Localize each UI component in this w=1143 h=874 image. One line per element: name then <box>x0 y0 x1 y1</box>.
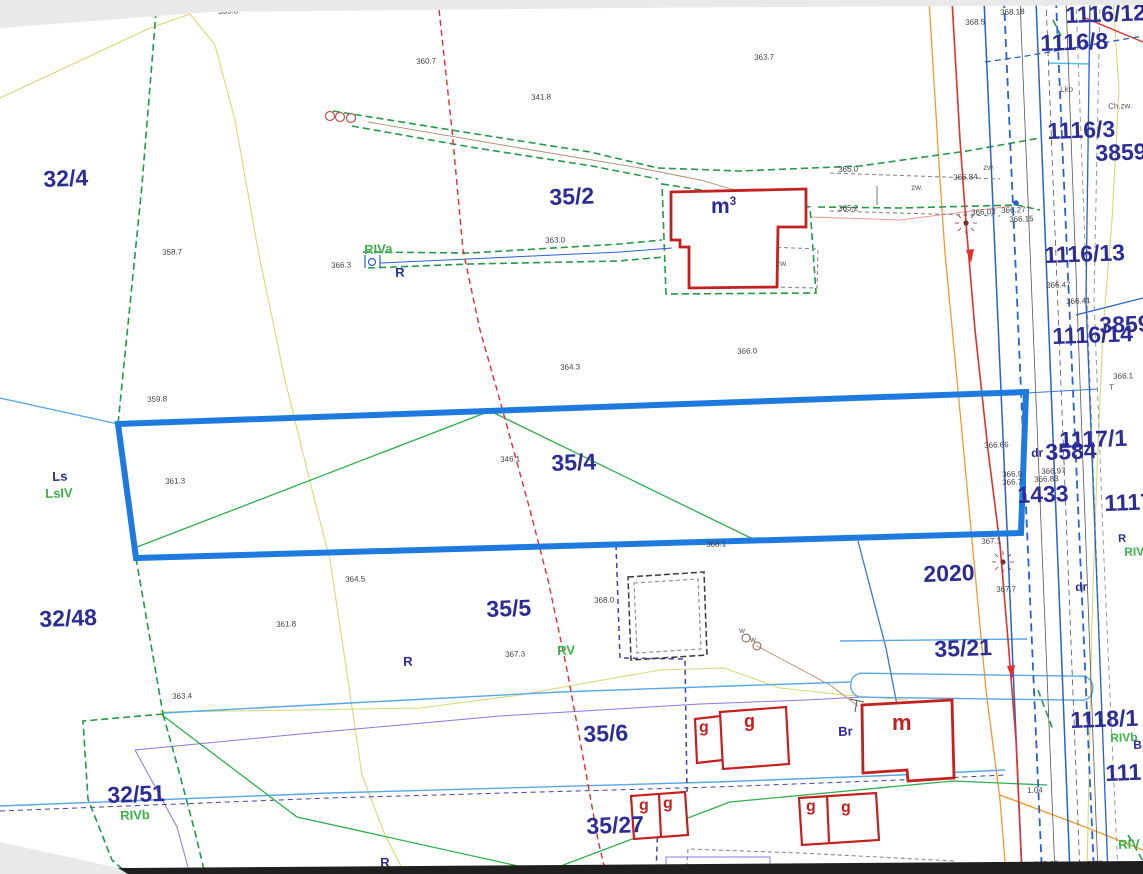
tree-circles <box>326 112 356 123</box>
structure-outer <box>628 572 707 660</box>
map-geometry <box>0 0 1143 874</box>
water-line <box>840 639 1027 641</box>
light-blue-lines <box>0 63 1093 811</box>
soil-boundary <box>137 411 757 547</box>
dashed-diagonal <box>985 36 1143 62</box>
building-m-right <box>862 700 954 781</box>
boundary-blue <box>858 541 897 705</box>
tan-line <box>368 122 735 190</box>
band-line <box>1094 0 1118 874</box>
boundary <box>1038 690 1053 730</box>
building-g-small <box>695 716 723 763</box>
building-m-35-2 <box>671 189 806 288</box>
flow-arrow <box>966 249 974 263</box>
corridor-edge <box>363 240 662 253</box>
survey-point <box>955 212 977 234</box>
green-solid-lines <box>137 411 1047 872</box>
survey-point <box>992 551 1014 573</box>
boundary <box>118 0 163 714</box>
boundary <box>1128 835 1143 868</box>
purple-enclosure <box>666 857 770 873</box>
road-strip <box>851 673 1093 700</box>
corridor-edge <box>818 205 1040 210</box>
corridor-edge <box>352 126 658 179</box>
selected-parcel-outline[interactable] <box>118 392 1026 558</box>
yellow-line <box>160 668 908 712</box>
water-line <box>1048 63 1090 64</box>
corridor-edge <box>658 138 1040 171</box>
stream-dashed <box>438 0 606 874</box>
band-line <box>1066 0 1098 874</box>
utility-band <box>984 0 1143 874</box>
structure-inner <box>634 579 701 653</box>
boundary <box>163 714 205 874</box>
purple-line <box>135 750 188 867</box>
well-connection-line <box>757 646 858 706</box>
band-line <box>1046 0 1080 874</box>
boundary <box>83 714 163 874</box>
building-g-pair <box>799 793 879 845</box>
corridor-edge <box>333 111 658 168</box>
corridor-edge <box>368 257 664 268</box>
building-g-large <box>720 707 789 769</box>
water-pipe <box>380 248 672 263</box>
band-line <box>1036 0 1070 874</box>
band-line <box>1026 389 1098 393</box>
dashed-enclosure <box>686 849 955 874</box>
cadastral-map[interactable]: 32/435/235/435/535/635/2732/4832/5135/21… <box>0 0 1143 874</box>
buildings <box>631 189 954 845</box>
water-line <box>163 682 850 713</box>
green-dashed-boundaries <box>83 0 1143 874</box>
marker-dot <box>1013 200 1019 206</box>
scarp-line <box>830 211 1000 216</box>
scarp-line <box>830 173 1000 179</box>
dashed-structure <box>628 572 707 660</box>
orange-line <box>1000 795 1143 850</box>
water-line <box>0 398 118 424</box>
